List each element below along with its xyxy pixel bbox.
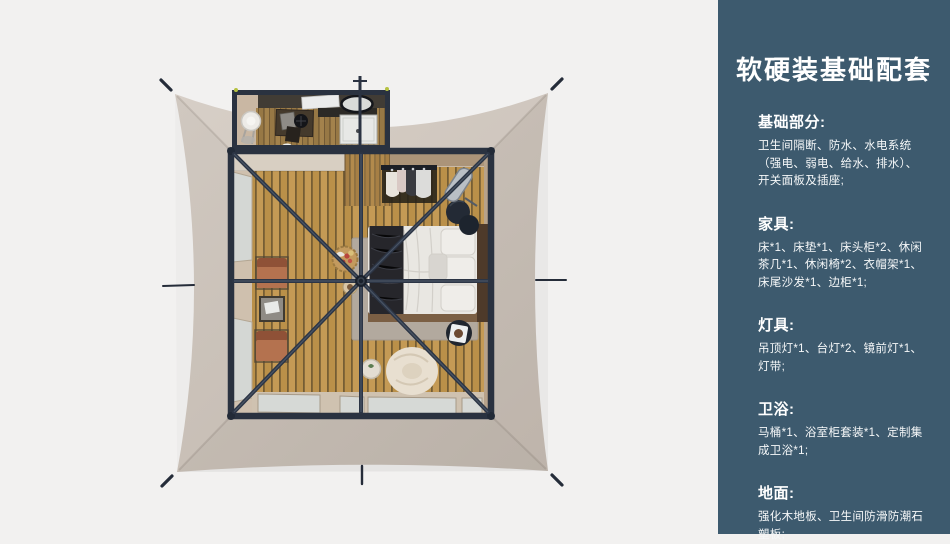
- section-body: 吊顶灯*1、台灯*2、镜前灯*1、 灯带;: [758, 341, 930, 376]
- clothes-rack: [381, 165, 437, 203]
- section-furniture: 家具: 床*1、床垫*1、床头柜*2、休闲 茶几*1、休闲椅*2、衣帽架*1、 …: [758, 213, 930, 293]
- tray-table: [446, 320, 472, 346]
- section-heading: 卫浴:: [758, 398, 930, 419]
- vanity-stool: [285, 126, 301, 143]
- section-basics: 基础部分: 卫生间隔断、防水、水电系统 （强电、弱电、给水、排水）、 开关面板及…: [758, 111, 930, 191]
- garment: [416, 170, 431, 198]
- section-heading: 地面:: [758, 482, 930, 503]
- left-window-lower: [233, 318, 252, 402]
- headboard: [477, 224, 489, 322]
- floor-stool: [362, 360, 381, 379]
- bathroom-unit: [234, 87, 389, 149]
- tent-top-view-render: [0, 0, 718, 534]
- side-shelf: [260, 297, 284, 321]
- oval-basin: [342, 96, 373, 112]
- guy-line-left: [163, 285, 194, 286]
- section-body: 卫生间隔断、防水、水电系统 （强电、弱电、给水、排水）、 开关面板及插座;: [758, 138, 930, 191]
- lounge-chair-1: [256, 257, 288, 289]
- lounge-chair-2: [255, 330, 288, 362]
- corner-light-left: [234, 88, 238, 92]
- section-heading: 灯具:: [758, 314, 930, 335]
- panel-title: 软硬装基础配套: [718, 50, 950, 87]
- left-window-upper: [233, 172, 252, 262]
- vanity-mirror: [302, 95, 340, 110]
- section-heading: 家具:: [758, 213, 930, 234]
- roof-braces: [234, 154, 488, 412]
- pillow: [441, 285, 475, 311]
- tent-scene-svg: [0, 0, 718, 534]
- section-body: 床*1、床垫*1、床头柜*2、休闲 茶几*1、休闲椅*2、衣帽架*1、 床尾沙发…: [758, 240, 930, 293]
- spec-sections: 基础部分: 卫生间隔断、防水、水电系统 （强电、弱电、给水、排水）、 开关面板及…: [718, 111, 950, 544]
- section-body: 强化木地板、卫生间防滑防潮石 塑板;: [758, 509, 930, 544]
- section-bath: 卫浴: 马桶*1、浴室柜套装*1、定制集 成卫浴*1;: [758, 398, 930, 460]
- accent-pillow: [429, 254, 447, 280]
- center-hub: [355, 275, 367, 287]
- section-body: 马桶*1、浴室柜套装*1、定制集 成卫浴*1;: [758, 425, 930, 460]
- section-lighting: 灯具: 吊顶灯*1、台灯*2、镜前灯*1、 灯带;: [758, 314, 930, 376]
- spec-panel: 软硬装基础配套 基础部分: 卫生间隔断、防水、水电系统 （强电、弱电、给水、排水…: [718, 0, 950, 534]
- section-heading: 基础部分:: [758, 111, 930, 132]
- section-floor: 地面: 强化木地板、卫生间防滑防潮石 塑板;: [758, 482, 930, 544]
- corner-light-right: [385, 87, 389, 91]
